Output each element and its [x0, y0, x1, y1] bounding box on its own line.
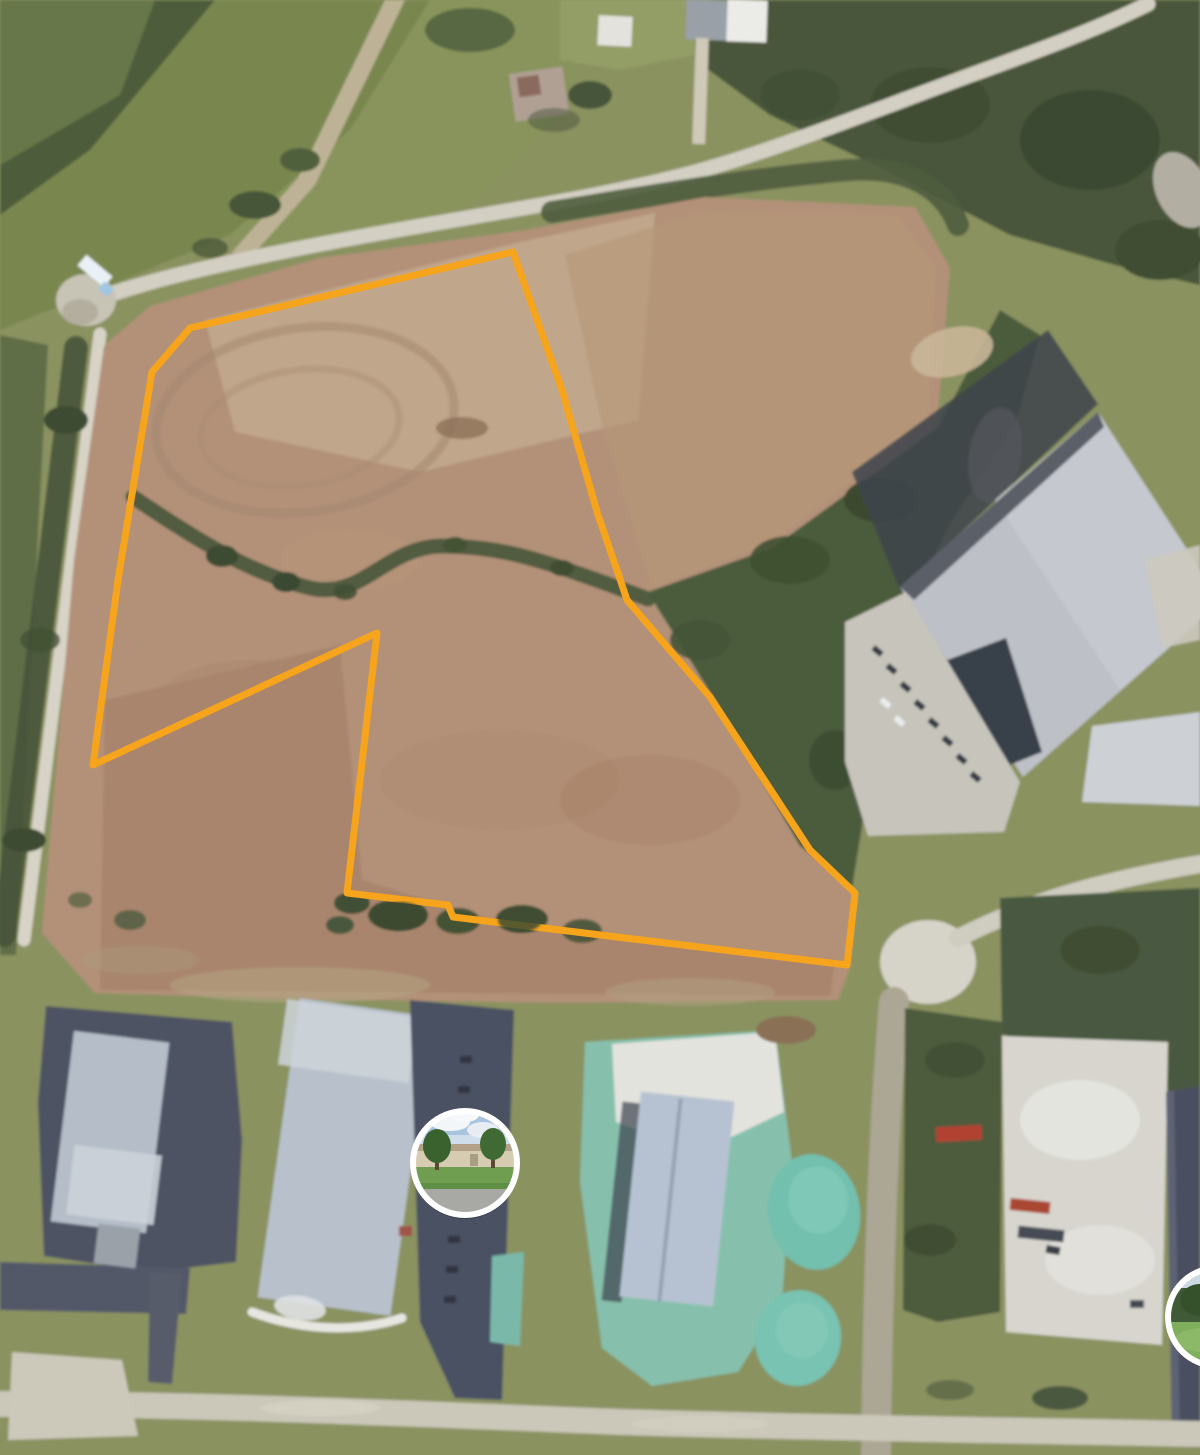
gravel-white-patch — [1020, 1080, 1140, 1160]
tree-blob — [1020, 90, 1160, 190]
photo-grass-dark — [413, 1183, 517, 1189]
field-dapple — [160, 660, 340, 740]
stream-tree — [333, 584, 357, 600]
left-building-ext — [94, 1224, 141, 1269]
tree-blob — [1060, 926, 1140, 974]
hedgerow-blob — [280, 148, 320, 172]
grass-tan-patch — [80, 946, 200, 974]
photo-door — [470, 1154, 478, 1166]
teal-strip — [490, 1252, 524, 1346]
house-roof-red — [517, 75, 542, 98]
cul-de-sac-dirt — [62, 299, 98, 325]
dirt-pile — [756, 1016, 816, 1044]
red-car — [399, 1226, 412, 1236]
tree-blob — [904, 1224, 956, 1256]
left-building-white — [66, 1145, 162, 1225]
stream-tree — [550, 560, 574, 576]
field-dapple — [560, 755, 740, 845]
warehouse-annex-roof — [1082, 712, 1200, 806]
bottom-road-bulge — [8, 1352, 138, 1440]
parked-car — [448, 1236, 460, 1243]
vertical-road — [876, 1002, 894, 1455]
photo-tree — [480, 1128, 506, 1160]
parked-car — [458, 1086, 470, 1093]
hedgerow-blob — [229, 191, 281, 219]
pond-light — [776, 1302, 828, 1358]
tree-blob — [2, 828, 46, 852]
grass-tan-patch — [170, 967, 430, 1003]
tree-blob — [926, 1380, 974, 1400]
field-dark-spot — [436, 417, 488, 439]
tree-blob — [670, 620, 730, 660]
parcel-edge-tree — [326, 916, 354, 934]
stream-tree — [443, 537, 467, 553]
hedgerow-blob — [192, 238, 228, 258]
stream-tree — [272, 572, 300, 592]
house-shadow — [528, 108, 580, 132]
parked-car — [444, 1296, 456, 1303]
photo-tree — [423, 1129, 451, 1163]
building-roof-light-half — [726, 0, 767, 43]
grass-tan-patch — [605, 978, 775, 1006]
lone-tree — [114, 910, 146, 930]
tree-blob — [750, 536, 830, 584]
parked-car — [1130, 1300, 1144, 1308]
red-truck — [936, 1125, 983, 1142]
tree-blob — [760, 69, 840, 121]
road-texture — [260, 1400, 380, 1416]
stream-tree — [206, 545, 238, 567]
road-texture — [630, 1416, 770, 1432]
tree-blob — [20, 628, 60, 652]
tree-clump-topcenter — [425, 8, 515, 52]
satellite-map-canvas[interactable] — [0, 0, 1200, 1455]
building-roof-dark-half — [685, 0, 728, 41]
tree-blob — [44, 406, 88, 434]
photo-marker-main[interactable] — [412, 1108, 518, 1219]
tree-blob — [1032, 1386, 1088, 1410]
tree-over-boundary — [374, 902, 426, 930]
tree-blob — [925, 1042, 985, 1078]
shed-roof — [597, 15, 633, 47]
parked-car — [460, 1056, 472, 1063]
tree-near-house — [568, 81, 612, 109]
lone-tree — [68, 892, 92, 908]
satellite-map-view[interactable] — [0, 0, 1200, 1455]
tree-over-boundary — [498, 908, 542, 932]
parked-car — [446, 1266, 458, 1273]
